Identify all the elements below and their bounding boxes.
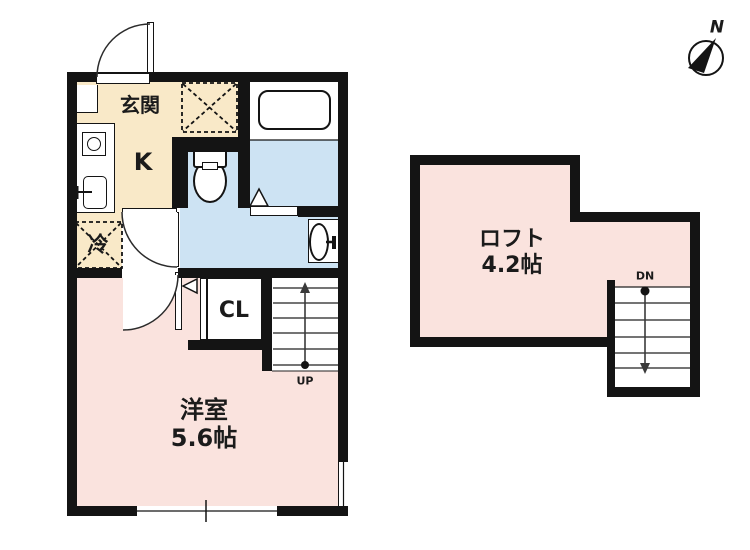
loft-wall-notch-h	[570, 212, 700, 222]
kitchen-door-panel-open	[122, 208, 177, 216]
window-east	[339, 462, 348, 506]
wall-mid-left	[67, 268, 122, 278]
floor-plan-canvas: 玄関 K 冷 CL 洋室 5.6帖 UP ロフト 4.2帖 DN N	[0, 0, 750, 550]
western-room-size-label: 5.6帖	[171, 426, 238, 450]
closet-label: CL	[219, 300, 249, 322]
toilet-seat-notch	[202, 162, 218, 170]
stairs-down-label: DN	[636, 271, 654, 282]
window-south	[137, 506, 277, 516]
stairs-up-area	[272, 278, 338, 371]
closet-door-panel	[200, 278, 207, 340]
loft-wall-top	[410, 155, 580, 165]
wall-outer-right	[338, 72, 348, 516]
wall-toilet-left	[172, 137, 188, 208]
genkan-label: 玄関	[120, 95, 160, 115]
wall-toilet-right	[238, 150, 250, 208]
kitchen-label: K	[134, 150, 153, 174]
bathroom-door-threshold	[250, 206, 298, 216]
entrance-opening	[96, 73, 150, 84]
genkan-step	[77, 85, 98, 113]
wall-bath-bottom	[298, 206, 338, 217]
compass-north-label: N	[710, 20, 724, 37]
bathtub	[258, 90, 331, 130]
entrance-door-panel	[147, 22, 154, 77]
loft-stairs-wall-bottom	[607, 387, 700, 397]
loft-wall-right	[690, 212, 700, 397]
loft-wall-left	[410, 155, 420, 347]
washbasin-bowl	[309, 223, 329, 261]
stove-burner-icon	[87, 137, 101, 151]
loft-wall-bottom	[410, 337, 615, 347]
kitchen-sink	[83, 176, 107, 209]
wall-outer-left	[67, 72, 77, 516]
stairs-down-area	[615, 287, 690, 387]
doorway-gap	[122, 268, 178, 278]
wall-stairs-left	[262, 278, 272, 371]
wall-closet-bottom	[188, 340, 270, 350]
loft-stairs-wall-left	[607, 280, 615, 397]
fridge-label: 冷	[88, 235, 109, 256]
wall-mid-right	[178, 268, 348, 278]
loft-label: ロフト	[479, 229, 545, 251]
room-door-panel	[175, 272, 182, 330]
western-room-label: 洋室	[180, 398, 228, 422]
entrance-door-arc-icon	[97, 24, 150, 77]
compass-icon	[688, 38, 723, 75]
kitchen-door-panel-closed	[171, 212, 179, 267]
loft-size-label: 4.2帖	[482, 255, 543, 277]
stairs-up-label: UP	[297, 376, 314, 387]
loft-floor-b	[570, 222, 607, 337]
